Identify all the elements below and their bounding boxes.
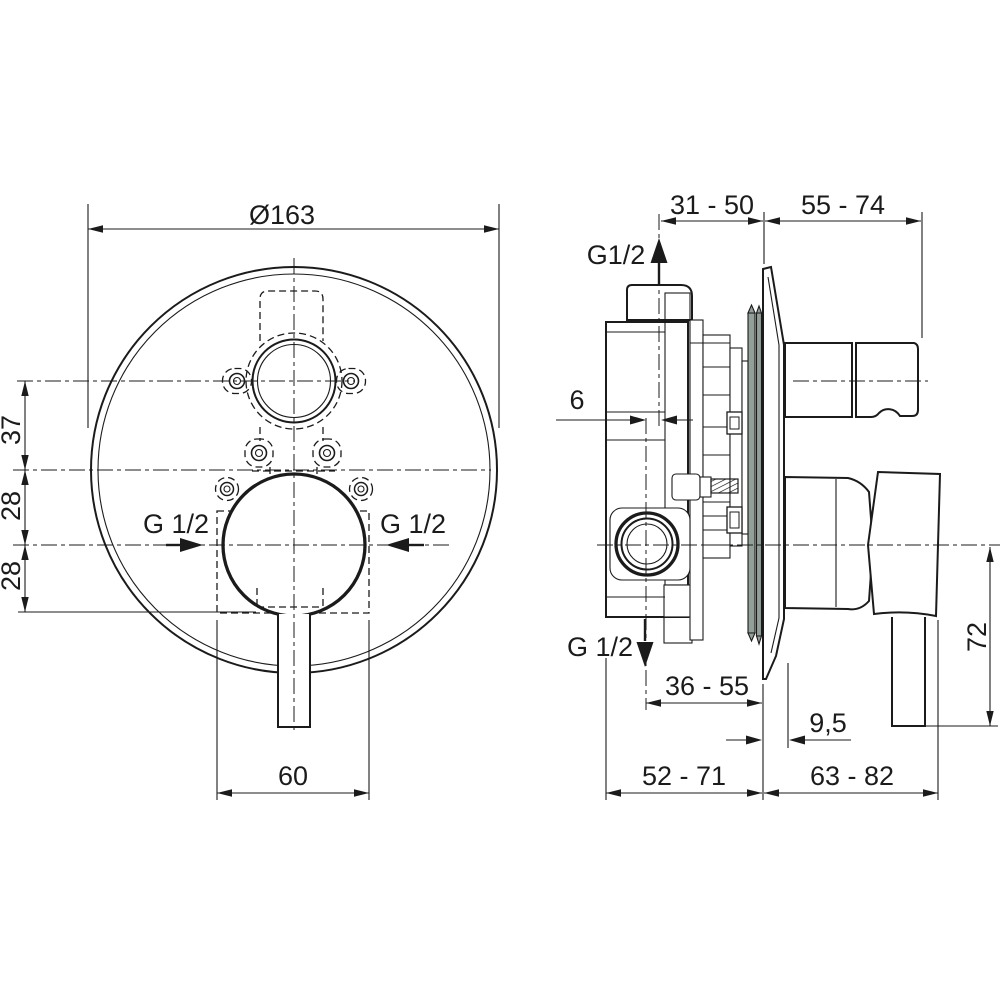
dimension-recess: 31 - 50 55 - 74 — [661, 190, 922, 338]
handle-hub — [785, 477, 873, 609]
dim-body-depth-label: 52 - 71 — [642, 761, 726, 791]
technical-drawing-canvas: Ø163 — [0, 0, 1000, 1000]
bolt-thread — [711, 479, 738, 493]
dimension-outlet-depth: 36 - 55 — [646, 671, 762, 703]
flow-arrow-down-icon — [637, 642, 654, 667]
spout-hub — [785, 343, 852, 417]
inlet-annotation-right: G 1/2 — [380, 509, 446, 552]
bracket-foot — [664, 617, 692, 643]
handle-grip — [868, 472, 940, 616]
body-notch — [664, 585, 692, 617]
bolt-washer — [700, 477, 711, 497]
front-view: Ø163 — [0, 200, 499, 800]
dimension-vertical-chain: 37 28 28 — [0, 381, 26, 612]
outlet-label-top: G1/2 — [587, 240, 646, 270]
handle-side — [785, 472, 940, 726]
dim-recess-label: 31 - 50 — [670, 190, 754, 220]
dim-center-upper-label: 28 — [0, 491, 26, 521]
plate-diameter-label: Ø163 — [249, 200, 315, 230]
dim-handle-projection-label: 63 - 82 — [810, 761, 894, 791]
dim-box-width-label: 60 — [278, 761, 308, 791]
dim-adjust-label: 6 — [569, 385, 584, 415]
dim-diverter-offset-label: 37 — [0, 415, 26, 445]
dim-lever-length-label: 72 — [962, 622, 992, 652]
outlet-annotation-bottom: G 1/2 — [567, 619, 654, 667]
lever-side — [892, 617, 925, 726]
spout — [785, 343, 928, 417]
cartridge-stack — [703, 335, 748, 558]
side-view: 31 - 50 55 - 74 G1/2 6 G 1/2 36 - 55 — [556, 190, 1000, 800]
flow-arrow-left-icon — [180, 538, 203, 552]
flow-arrow-up-icon — [651, 238, 668, 263]
bolt-nut — [672, 474, 700, 500]
mixer-installation-drawing: Ø163 — [0, 0, 1000, 1000]
outlet-annotation-top: G1/2 — [587, 238, 668, 286]
dimension-adjust: 6 — [556, 385, 693, 425]
flow-arrow-right-icon — [386, 538, 409, 552]
spout-pipe — [856, 343, 918, 417]
inlet-port — [610, 508, 690, 580]
dim-outlet-depth-label: 36 - 55 — [665, 671, 749, 701]
dim-center-lower-label: 28 — [0, 561, 26, 591]
dim-plate-offset-label: 9,5 — [809, 708, 847, 738]
escutcheon-profile — [763, 267, 784, 679]
wall-seal-strips — [748, 305, 762, 644]
inlet-label-left: G 1/2 — [143, 509, 209, 539]
outlet-label-bottom: G 1/2 — [567, 632, 633, 662]
inlet-annotation-left: G 1/2 — [143, 509, 209, 552]
dim-projection-label: 55 - 74 — [801, 190, 885, 220]
inlet-label-right: G 1/2 — [380, 509, 446, 539]
